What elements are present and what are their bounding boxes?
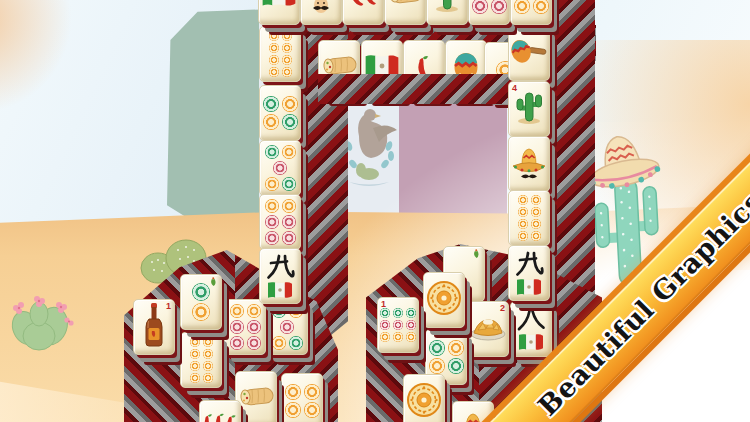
character-eight-face <box>516 307 546 351</box>
orange-dot <box>190 349 200 359</box>
green-dot <box>263 96 279 112</box>
orange-dot <box>203 349 213 359</box>
character-nine-face <box>514 250 544 296</box>
flag-stripe-green <box>167 0 259 236</box>
orange-dot <box>269 43 279 53</box>
tile-rpillar-dots-o8[interactable] <box>508 190 550 246</box>
orange-dot <box>203 361 213 371</box>
dots-face <box>285 384 320 418</box>
green-dot <box>282 177 296 191</box>
orange-dot <box>380 332 390 342</box>
dots-face <box>429 340 464 374</box>
tile-lc-chilis3[interactable] <box>199 400 241 422</box>
orange-dot <box>289 304 303 318</box>
green-dot <box>282 114 298 130</box>
chili-marker-icon <box>209 276 218 287</box>
pink-dot <box>472 0 488 14</box>
tile-lc-dots-6[interactable] <box>224 299 266 355</box>
pink-dot <box>230 336 244 350</box>
orange-dot <box>190 337 200 347</box>
game-scene: 4121 Beautiful Graphics <box>0 0 750 422</box>
green-dot <box>272 304 286 318</box>
tile-lpillar-dots-6[interactable] <box>259 194 301 250</box>
chili-marker-icon <box>472 248 481 261</box>
tile-rpillar-sombrero[interactable] <box>508 136 550 192</box>
pink-dot <box>265 215 279 229</box>
orange-dot <box>514 0 530 14</box>
dots-face <box>269 31 292 77</box>
dots-face <box>263 96 298 130</box>
tile-top-flag[interactable] <box>258 0 300 25</box>
orange-dot <box>285 384 301 400</box>
orange-dot <box>518 207 528 217</box>
pink-dot <box>282 231 296 245</box>
orange-dot <box>406 332 416 342</box>
dish-icon <box>469 312 507 346</box>
tile-top-cactus[interactable] <box>426 0 468 25</box>
tile-rpillar-nine[interactable] <box>508 245 550 301</box>
orange-dot <box>285 402 301 418</box>
tile-lc-dots-5[interactable] <box>266 299 308 355</box>
tile-rpillar-cactus[interactable]: 4 <box>508 81 550 137</box>
maraca-icon <box>510 36 548 70</box>
green-dot <box>289 336 303 350</box>
orange-dot <box>192 303 210 321</box>
burrito-icon <box>386 0 424 12</box>
tile-lc-burrito[interactable] <box>235 371 277 422</box>
tile-rc-dots-9[interactable]: 1 <box>377 297 419 353</box>
pink-dot <box>273 161 287 175</box>
orange-dot <box>282 67 292 77</box>
orange-dot <box>393 332 403 342</box>
remaining-count-badge: 4 <box>512 83 517 93</box>
orange-dot <box>304 402 320 418</box>
character-nine <box>514 250 544 277</box>
orange-dot <box>518 219 528 229</box>
green-dot <box>448 358 464 374</box>
tile-lc-dots-o4[interactable] <box>281 373 323 422</box>
remaining-count-badge: 1 <box>381 299 386 309</box>
dots-face <box>472 0 507 14</box>
tile-rc-medallion2[interactable] <box>403 374 445 422</box>
tile-rpillar-maraca[interactable] <box>508 25 550 81</box>
sombrero-icon <box>511 144 547 184</box>
pink-dot <box>247 320 261 334</box>
tile-lpillar-nine[interactable] <box>259 248 301 304</box>
tile-top-burrito[interactable] <box>384 0 426 25</box>
character-eight <box>516 307 546 332</box>
chili-marker-icon <box>209 276 218 289</box>
orange-dot <box>531 207 541 217</box>
cactus-icon <box>512 89 546 129</box>
orange-dot <box>531 219 541 229</box>
cactus-icon <box>430 0 464 17</box>
dots-face <box>230 304 261 350</box>
orange-dot <box>263 114 279 130</box>
pink-dot <box>491 0 507 14</box>
green-dot <box>380 308 390 318</box>
orange-dot <box>282 43 292 53</box>
burrito-icon <box>237 384 275 414</box>
orange-dot <box>269 67 279 77</box>
medallion-icon <box>426 280 462 320</box>
orange-dot <box>282 199 296 213</box>
tile-rc-dish[interactable]: 2 <box>467 301 509 357</box>
character-nine-face <box>265 253 295 299</box>
orange-dot <box>533 0 549 14</box>
green-dot <box>429 340 445 356</box>
dots-face <box>190 337 213 383</box>
orange-dot <box>247 304 261 318</box>
tile-lc-dots-2[interactable] <box>180 274 222 330</box>
pink-dot <box>280 320 294 334</box>
orange-dot <box>531 231 541 241</box>
orange-dot <box>190 373 200 383</box>
dots-face <box>265 145 296 191</box>
orange-dot <box>269 31 279 41</box>
chilis-icon <box>346 0 380 16</box>
flag-icon <box>261 0 297 12</box>
pink-dot <box>247 336 261 350</box>
orange-dot <box>269 55 279 65</box>
orange-dot <box>282 96 298 112</box>
pink-dot <box>230 320 244 334</box>
pink-dot <box>406 320 416 330</box>
tile-rc-eight[interactable] <box>510 301 552 357</box>
green-dot <box>192 283 210 301</box>
pink-dot <box>282 215 296 229</box>
chilis3-icon <box>201 411 239 422</box>
orange-dot <box>265 177 279 191</box>
chili-marker-icon <box>472 248 481 259</box>
dots-face <box>272 304 303 350</box>
green-dot <box>393 308 403 318</box>
tile-lpillar-dots-5[interactable] <box>259 140 301 196</box>
medallion-icon <box>406 382 442 422</box>
tile-lc-bottle[interactable]: 1 <box>133 299 175 355</box>
dots-face <box>518 195 541 241</box>
mariachi-icon <box>303 0 339 19</box>
remaining-count-badge: 2 <box>500 303 505 313</box>
sun-glow <box>0 0 76 116</box>
green-dot <box>406 308 416 318</box>
orange-dot <box>518 195 528 205</box>
tile-rc-medallion[interactable] <box>423 272 465 328</box>
orange-dot <box>265 199 279 213</box>
tile-top-chilis[interactable] <box>342 0 384 25</box>
orange-dot <box>282 145 296 159</box>
remaining-count-badge: 1 <box>166 301 171 311</box>
orange-dot <box>429 358 445 374</box>
orange-dot <box>282 55 292 65</box>
orange-dot <box>304 384 320 400</box>
tile-top-mariachi[interactable] <box>300 0 342 25</box>
tile-top-dots-orange4[interactable] <box>510 0 552 25</box>
prickly-pear-cactus <box>2 276 84 356</box>
orange-dot <box>282 31 292 41</box>
dots-face <box>192 283 210 321</box>
dots-face <box>514 0 549 14</box>
tile-lpillar-dots-o8[interactable] <box>259 26 301 82</box>
orange-dot <box>190 361 200 371</box>
orange-dot <box>230 304 244 318</box>
tile-lpillar-dots-4[interactable] <box>259 85 301 141</box>
orange-dot <box>272 336 286 350</box>
orange-dot <box>518 231 528 241</box>
tile-top-dots-pink4[interactable] <box>468 0 510 25</box>
green-dot <box>265 145 279 159</box>
pink-dot <box>380 320 390 330</box>
character-nine <box>265 253 295 280</box>
pink-dot <box>265 231 279 245</box>
tile-lc-dots-o8[interactable] <box>180 332 222 388</box>
orange-dot <box>203 337 213 347</box>
pink-dot <box>393 320 403 330</box>
orange-dot <box>448 340 464 356</box>
bottle-icon <box>142 302 166 352</box>
orange-dot <box>203 373 213 383</box>
dots-face <box>265 199 296 245</box>
dots-face <box>380 308 416 342</box>
orange-dot <box>531 195 541 205</box>
